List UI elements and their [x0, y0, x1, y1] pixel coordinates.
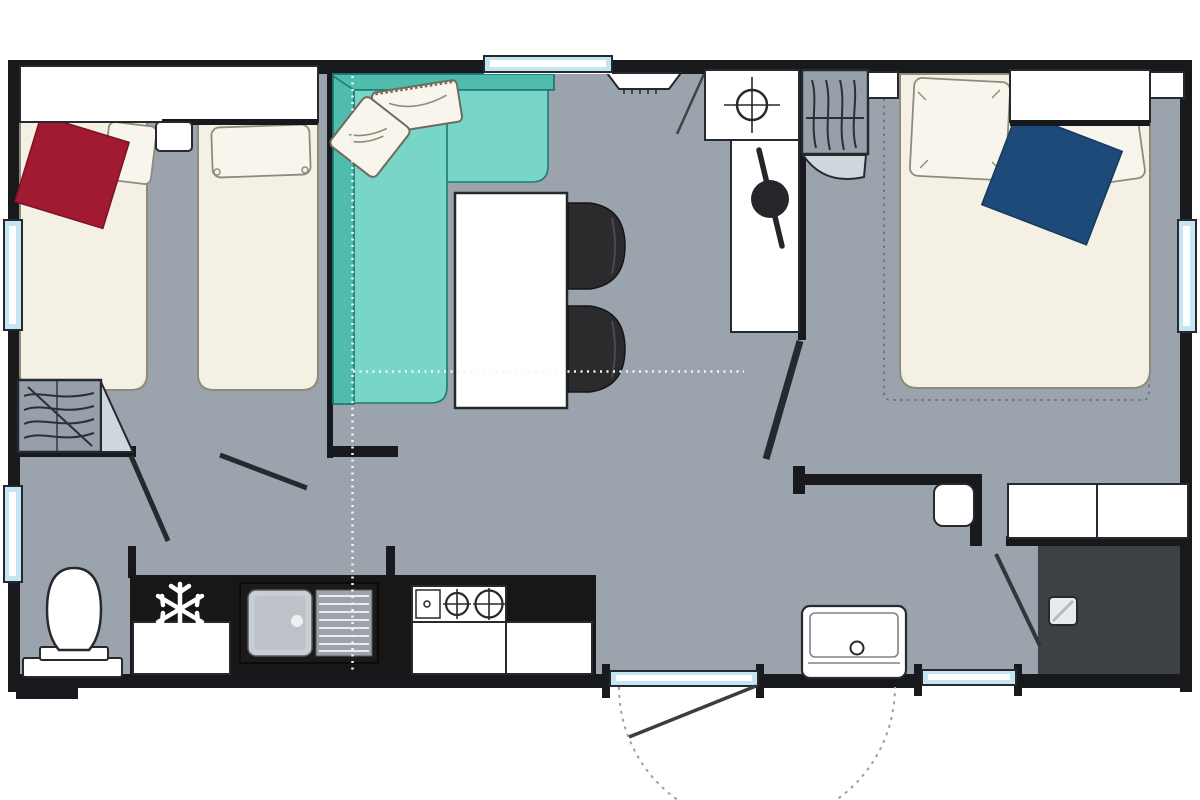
basin-drain — [851, 642, 864, 655]
sink-drain — [291, 615, 303, 627]
floor-plan — [0, 0, 1200, 800]
window-pane — [9, 226, 16, 324]
water-heater — [731, 140, 799, 332]
door-pane — [616, 675, 752, 681]
door-jamb — [602, 664, 610, 698]
pillow — [910, 78, 1011, 181]
sink-drainer — [316, 590, 372, 656]
window-pane — [9, 492, 16, 576]
entrance-step — [16, 688, 78, 699]
kitchen-sink — [240, 583, 378, 663]
pillow — [211, 124, 311, 177]
kitchen-cabinet — [412, 622, 506, 674]
headboard-shelf-edge — [1010, 120, 1150, 126]
window-pane — [928, 674, 1010, 680]
wall-outer-right — [1180, 60, 1192, 692]
bedside-shelf-left — [868, 72, 898, 98]
headboard-shelf — [20, 66, 318, 122]
wall-kitchen-stub — [386, 546, 395, 578]
wall-wc-jamb — [128, 546, 136, 578]
wardrobe-double-bedroom — [802, 70, 868, 179]
roof-vent — [705, 70, 799, 140]
wall-bedroom1-south-right — [327, 446, 398, 457]
corner-shelf — [934, 484, 974, 526]
chair-top — [568, 203, 625, 289]
window-pane — [1183, 226, 1190, 326]
storage-cabinet — [1097, 484, 1188, 538]
dining-table — [455, 193, 567, 408]
bedside-shelf-right — [1150, 72, 1184, 98]
storage-cabinet — [1008, 484, 1097, 538]
chair-bottom — [568, 306, 625, 392]
headboard-shelf-double — [1010, 70, 1150, 122]
kitchen-cabinet — [506, 622, 592, 674]
washbasin — [802, 606, 906, 678]
toilet-bowl — [47, 568, 101, 650]
floor-plan-canvas — [0, 0, 1200, 800]
room-kitchen — [130, 575, 596, 674]
window-pane — [490, 60, 606, 67]
window-jamb — [914, 664, 922, 696]
wall-outer-left — [8, 60, 20, 692]
nightstand — [156, 122, 192, 151]
gas-hob — [412, 586, 506, 622]
